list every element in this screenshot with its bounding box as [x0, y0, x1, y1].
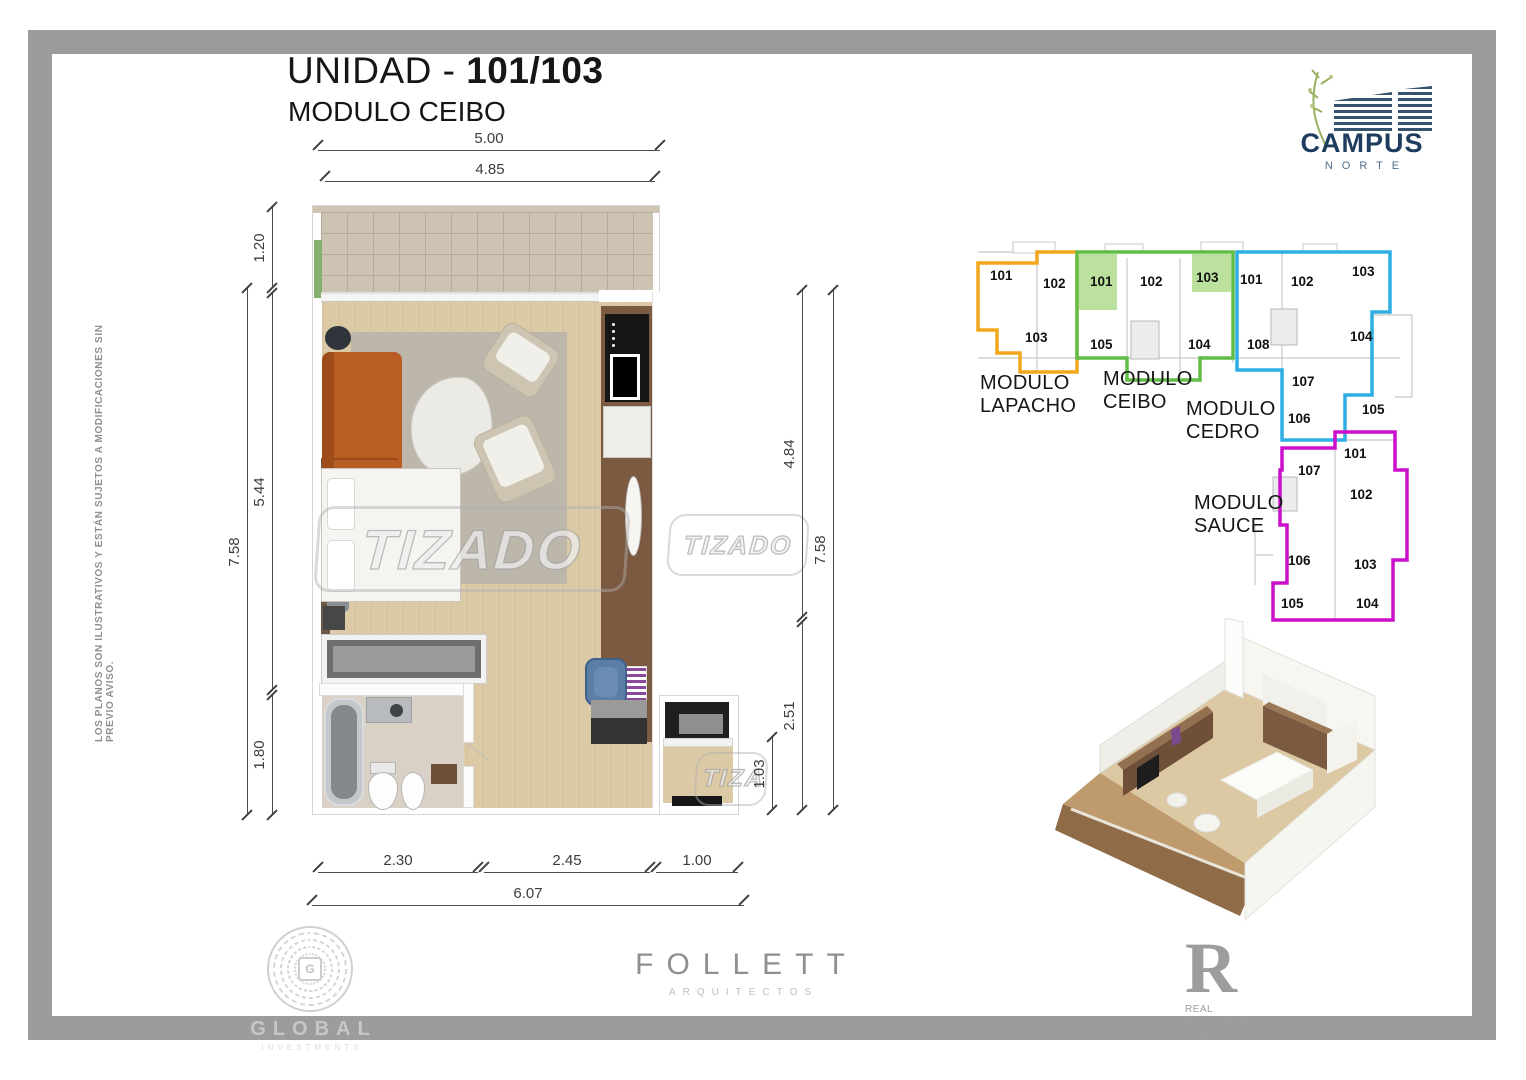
keyplan-unit-number: 105	[1090, 337, 1113, 352]
dim-label: 7.58	[226, 537, 243, 566]
dim-label: 1.03	[751, 759, 768, 788]
module-label-line: MODULO	[1186, 398, 1276, 421]
keyplan-unit-number: 106	[1288, 553, 1311, 568]
dim-label: 1.80	[251, 740, 268, 769]
bathroom-wall	[319, 683, 473, 696]
module-subtitle: MODULO CEIBO	[288, 96, 506, 128]
module-label-line: LAPACHO	[980, 395, 1076, 418]
dim-bottom-bath: 2.30	[318, 872, 478, 873]
unit-label: UNIDAD -	[287, 50, 466, 91]
global-monogram: G	[298, 957, 322, 981]
dim-label: 1.20	[251, 233, 268, 262]
balcony-tiles	[321, 212, 653, 292]
keyplan-unit-number: 101	[1344, 446, 1367, 461]
unit-number: 101/103	[466, 50, 603, 91]
keyplan-unit-number: 108	[1247, 337, 1270, 352]
dim-top-inner: 4.85	[325, 181, 655, 182]
rit-monogram: R	[1185, 936, 1315, 1001]
module-label-lapacho: MODULO LAPACHO	[980, 372, 1076, 418]
rit-line: TRUST	[1185, 1029, 1315, 1042]
tv-bench	[591, 700, 647, 744]
logo-global-investments: G GLOBAL INVESTMENTS	[243, 926, 377, 1052]
dim-left-balcony: 1.20	[272, 207, 273, 288]
plant-pot	[325, 326, 351, 350]
follett-logo-name: FOLLETT	[620, 948, 860, 982]
iso-3d-view	[1025, 618, 1445, 938]
dim-right-entry: 1.03	[772, 737, 773, 810]
keyplan-core	[1131, 321, 1159, 359]
bathtub	[324, 698, 364, 806]
dim-right-total: 7.58	[833, 290, 834, 810]
tv-niche	[665, 702, 729, 738]
campus-logo-subname: NORTE	[1288, 160, 1436, 172]
dim-label: 5.00	[474, 130, 503, 147]
dim-label: 5.44	[251, 477, 268, 506]
module-label-line: MODULO	[980, 372, 1076, 395]
desk-chair	[585, 658, 627, 706]
keyplan-unit-number: 101	[1090, 274, 1113, 289]
niche-sill	[663, 738, 733, 747]
campus-logo-name: CAMPUS	[1288, 128, 1436, 159]
module-label-line: CEDRO	[1186, 421, 1276, 444]
keyplan-unit-number: 104	[1188, 337, 1211, 352]
keyplan-unit-number: 101	[1240, 272, 1263, 287]
follett-logo-subname: ARQUITECTOS	[620, 987, 860, 998]
dim-label: 1.00	[682, 852, 711, 869]
dim-label: 4.85	[475, 161, 504, 178]
rit-logo-lines: REAL INVESTMENT TRUST	[1185, 1003, 1315, 1042]
global-logo-name: GLOBAL	[243, 1018, 377, 1041]
dim-label: 2.30	[383, 852, 412, 869]
logo-real-investment-trust: R REAL INVESTMENT TRUST	[1185, 936, 1315, 1042]
keyplan-unit-number: 102	[1291, 274, 1314, 289]
dim-label: 6.07	[513, 885, 542, 902]
keyplan-unit-number: 104	[1356, 596, 1379, 611]
module-label-line: MODULO	[1103, 368, 1193, 391]
dim-right-upper: 4.84	[802, 290, 803, 617]
nightstand	[323, 606, 345, 630]
dim-bottom-entry: 1.00	[656, 872, 738, 873]
kitchen-cabinet	[603, 406, 651, 458]
globe-icon: G	[267, 926, 353, 1012]
dim-left-total: 7.58	[247, 288, 248, 815]
keyplan-unit-number: 107	[1298, 463, 1321, 478]
keyplan-unit-number: 102	[1043, 276, 1066, 291]
bathroom-vanity	[366, 697, 412, 723]
keyplan-unit-number: 103	[1196, 270, 1219, 285]
module-label-line: SAUCE	[1194, 515, 1284, 538]
bathroom-wall	[463, 766, 474, 808]
keyplan-unit-number: 102	[1140, 274, 1163, 289]
kitchen-appliance	[605, 314, 649, 402]
rit-line: REAL	[1185, 1003, 1315, 1016]
logo-campus-norte: CAMPUS NORTE	[1288, 66, 1436, 182]
toilet	[368, 762, 396, 808]
bathroom-cabinet	[431, 764, 457, 784]
module-label-sauce: MODULO SAUCE	[1194, 492, 1284, 538]
dim-bottom-total: 6.07	[312, 905, 744, 906]
rit-line: INVESTMENT	[1185, 1016, 1315, 1029]
module-outline-sauce	[1273, 432, 1407, 620]
keyplan-unit-number: 102	[1350, 487, 1373, 502]
keyplan-unit-number: 107	[1292, 374, 1315, 389]
balcony-plant	[314, 240, 322, 298]
key-plan: 101 102 103 101 102 103 105 104 101 102 …	[955, 225, 1435, 645]
keyplan-unit-number: 105	[1281, 596, 1304, 611]
keyplan-unit-number: 105	[1362, 402, 1385, 417]
building-icon	[1398, 86, 1432, 132]
module-label-cedro: MODULO CEDRO	[1186, 398, 1276, 444]
dim-right-lower: 2.51	[802, 622, 803, 810]
disclaimer-text: LOS PLANOS SON ILUSTRATIVOS Y ESTÁN SUJE…	[94, 282, 116, 742]
keyplan-core	[1271, 309, 1297, 345]
plan-sheet: UNIDAD - 101/103 MODULO CEIBO LOS PLANOS…	[0, 0, 1526, 1080]
tizado-watermark: TIZADO	[666, 514, 810, 576]
wardrobe	[321, 634, 487, 684]
global-logo-subname: INVESTMENTS	[243, 1043, 377, 1052]
iso-tall-partition	[1225, 618, 1243, 698]
keyplan-unit-number: 103	[1025, 330, 1048, 345]
dim-label: 7.58	[812, 535, 829, 564]
dim-label: 4.84	[781, 439, 798, 468]
iso-chair	[1167, 793, 1187, 807]
module-label-ceibo: MODULO CEIBO	[1103, 368, 1193, 414]
iso-table	[1194, 814, 1220, 832]
building-icon	[1334, 92, 1392, 132]
keyplan-unit-number: 104	[1350, 329, 1373, 344]
dim-label: 2.45	[552, 852, 581, 869]
dim-left-bath: 1.80	[272, 695, 273, 815]
logo-follett-arquitectos: FOLLETT ARQUITECTOS	[620, 948, 860, 998]
tizado-watermark: TIZADO	[313, 506, 631, 592]
module-label-line: MODULO	[1194, 492, 1284, 515]
dim-bottom-mid: 2.45	[484, 872, 650, 873]
bathroom-wall	[463, 683, 474, 743]
keyplan-unit-number: 106	[1288, 411, 1311, 426]
dim-left-living: 5.44	[272, 293, 273, 690]
keyplan-unit-number: 103	[1354, 557, 1377, 572]
module-label-line: CEIBO	[1103, 391, 1193, 414]
keyplan-unit-number: 101	[990, 268, 1013, 283]
keyplan-unit-number: 103	[1352, 264, 1375, 279]
dim-label: 2.51	[781, 701, 798, 730]
page-title: UNIDAD - 101/103	[287, 50, 603, 92]
dim-top-total: 5.00	[318, 150, 660, 151]
